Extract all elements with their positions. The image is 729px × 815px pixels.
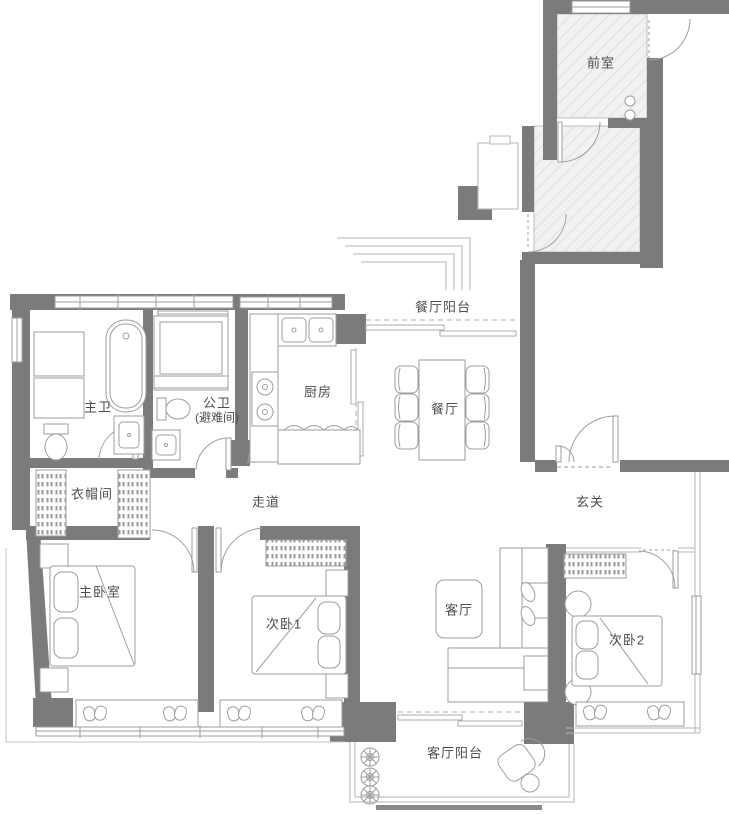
living-room-furniture: [436, 548, 548, 702]
dining-chair: [466, 394, 489, 421]
bathtub: [106, 320, 146, 412]
plant: [361, 768, 379, 786]
public-vanity: [152, 430, 180, 460]
bed1: [252, 596, 346, 674]
bay-window-bench: [220, 700, 342, 727]
label-master-bath: 主卫: [84, 401, 112, 416]
master-vanity: [114, 416, 144, 454]
label-public-bath-line2: (避难间): [195, 412, 239, 426]
dining-chair: [395, 366, 418, 393]
pillow: [576, 651, 598, 679]
label-cloakroom: 衣帽间: [71, 488, 113, 503]
label-kitchen: 厨房: [304, 386, 332, 401]
label-public-bath: 公卫 (避难间): [195, 397, 239, 426]
dining-chair: [466, 366, 489, 393]
pillow: [318, 602, 340, 634]
master-toilet: [44, 424, 68, 460]
nightstand: [326, 570, 348, 596]
master-bed: [50, 566, 135, 666]
dining-balcony-slider: [366, 320, 516, 336]
bed2: [572, 616, 662, 686]
wardrobe: [266, 540, 346, 566]
plant: [361, 748, 379, 766]
public-toilet: [157, 398, 190, 420]
living-balcony-slider: [398, 712, 522, 726]
wardrobe: [564, 554, 626, 578]
master-bath-fixtures: [34, 320, 146, 460]
front-room-entry-door: [649, 19, 690, 60]
plant: [361, 786, 379, 804]
pillow: [318, 636, 340, 668]
pillow: [54, 618, 78, 658]
round-nightstand: [565, 591, 591, 617]
label-corridor: 走道: [252, 496, 280, 511]
bedroom1-door: [216, 528, 263, 572]
side-table: [524, 656, 548, 690]
shower-area: [154, 316, 228, 390]
label-bedroom-2: 次卧2: [609, 634, 645, 649]
dining-chair: [395, 422, 418, 449]
public-bath-fixtures: [152, 316, 228, 460]
front-room-window: [572, 1, 630, 13]
label-master-bedroom: 主卧室: [79, 586, 121, 601]
dining-chair: [395, 394, 418, 421]
label-public-bath-line1: 公卫: [203, 396, 231, 411]
kitchen-sink: [278, 314, 336, 346]
bath-cabinets: [34, 332, 84, 418]
label-bedroom-1: 次卧1: [266, 618, 302, 633]
nightstand: [326, 674, 348, 698]
balcony-table: [521, 774, 539, 792]
label-dining-room: 餐厅: [431, 403, 459, 418]
bedroom1-furniture: [220, 540, 348, 727]
nightstand: [40, 544, 68, 568]
label-living-balcony: 客厅阳台: [427, 747, 483, 762]
bay-window-bench: [76, 700, 198, 727]
floor-plan: 前室 餐厅阳台 主卫 公卫 (避难间) 厨房 餐厅 衣帽间 走道 玄关 主卧室 …: [0, 0, 729, 815]
public-bath-door: [196, 438, 231, 470]
pillow: [576, 621, 598, 649]
label-living-room: 客厅: [445, 604, 473, 619]
stove: [252, 372, 278, 426]
top-wall-window-band: [55, 294, 233, 310]
left-wall-window: [12, 318, 22, 362]
living-balcony-furniture: [361, 733, 551, 804]
pillow: [54, 572, 78, 612]
nightstand: [40, 668, 68, 692]
bay-window-bench: [576, 702, 684, 726]
main-entry-door: [556, 416, 618, 467]
label-foyer: 玄关: [576, 496, 604, 511]
bedroom2-right-window: [692, 596, 701, 674]
label-front-room: 前室: [587, 57, 615, 72]
kitchen-island: [278, 426, 360, 465]
dining-chair: [466, 422, 489, 449]
master-bedroom-door: [152, 528, 197, 572]
kitchen-top-window: [240, 295, 332, 310]
label-dining-balcony: 餐厅阳台: [415, 301, 471, 316]
bedroom2-door: [639, 550, 678, 588]
